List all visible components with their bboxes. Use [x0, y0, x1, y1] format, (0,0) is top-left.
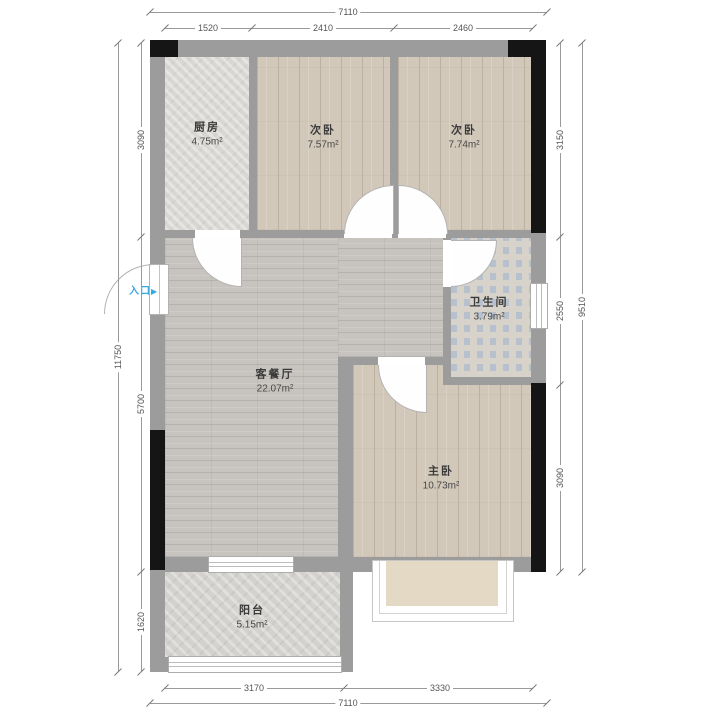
- bathroom-door-opening: [443, 240, 451, 287]
- entrance-label: 入口▶: [129, 282, 157, 297]
- dim-top-total: 7110: [335, 7, 360, 17]
- dim-bottom-seg2: 3330: [427, 683, 453, 693]
- kitchen-door-opening: [195, 230, 240, 238]
- wall-mid-seg2: [240, 230, 344, 238]
- dim-right-seg1: 3150: [555, 127, 565, 153]
- bay-window-sill: [386, 561, 498, 606]
- bathroom-window: [530, 283, 548, 329]
- dim-left-seg1: 3090: [136, 127, 146, 153]
- dim-bottom-total: 7110: [335, 698, 360, 708]
- balcony-floor: [164, 572, 340, 657]
- column-left-lower: [150, 430, 165, 570]
- living-dining-floor: [165, 238, 338, 557]
- master-door-opening: [378, 357, 425, 365]
- dim-top-seg2: 2410: [310, 23, 336, 33]
- dim-left-seg3: 1620: [136, 609, 146, 635]
- hallway-floor: [338, 238, 443, 357]
- dim-right-seg3: 3090: [555, 465, 565, 491]
- master-bedroom-floor: [353, 365, 531, 557]
- column-top-left: [150, 40, 178, 57]
- entrance-text: 入口: [129, 286, 151, 297]
- wall-mid-seg1: [165, 230, 195, 238]
- dim-left-seg2: 5700: [136, 391, 146, 417]
- wall-master-left: [338, 357, 353, 557]
- living-balcony-window: [208, 556, 294, 573]
- dim-top-seg1: 1520: [195, 23, 221, 33]
- column-top-right: [508, 40, 546, 57]
- wall-kitchen-right: [249, 57, 257, 230]
- column-right-upper: [531, 57, 546, 233]
- balcony-window: [168, 656, 342, 673]
- column-right-lower: [531, 383, 546, 572]
- dim-bottom-seg1: 3170: [241, 683, 267, 693]
- dim-line-bottom-segments: [165, 688, 533, 689]
- dim-left-total: 11750: [113, 342, 123, 372]
- entrance-door-frame-line: [159, 265, 160, 314]
- wall-bathroom-top: [446, 230, 531, 238]
- floor-plan: 厨房 4.75m² 次卧 7.57m² 次卧 7.74m² 卫生间 3.79m²…: [0, 0, 701, 714]
- dim-right-total: 9510: [577, 294, 587, 320]
- dim-right-seg2: 2550: [555, 298, 565, 324]
- kitchen-floor: [165, 57, 249, 230]
- dim-top-seg3: 2460: [450, 23, 476, 33]
- entrance-arrow-icon: ▶: [151, 287, 157, 296]
- wall-left: [150, 40, 165, 672]
- bay-window-frame: [372, 560, 514, 622]
- wall-top: [150, 40, 546, 57]
- wall-bathroom-bottom: [443, 377, 531, 385]
